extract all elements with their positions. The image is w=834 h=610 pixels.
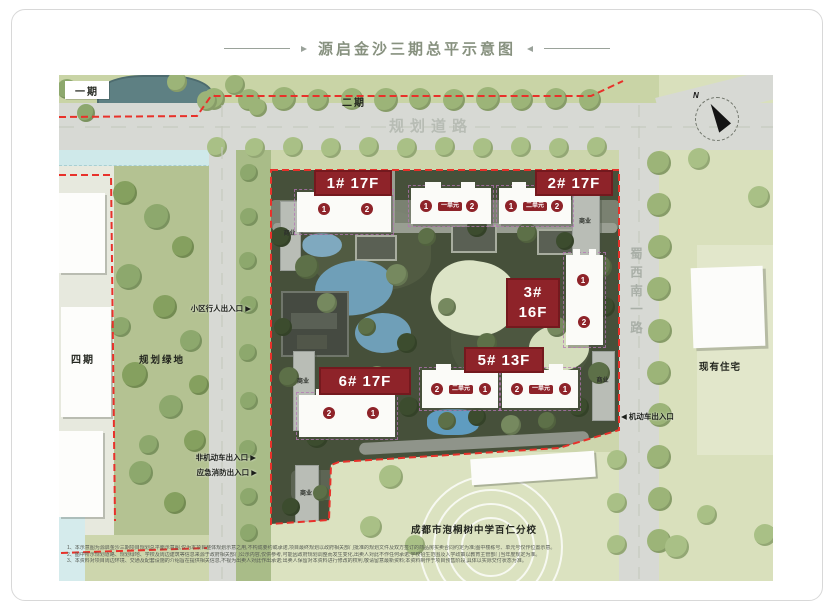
commercial-label: 商业	[295, 488, 317, 497]
unit-badge: 1	[367, 407, 379, 419]
planned-road-label: 规划道路	[389, 115, 473, 136]
non-motor-entrance-label: 非机动车出入口 ▶	[164, 452, 256, 463]
tree-icon	[129, 461, 153, 485]
tree-icon	[386, 264, 408, 286]
unit-badge: 1	[479, 383, 491, 395]
arrow-right-icon: ▶	[250, 453, 256, 462]
tree-icon	[295, 255, 319, 279]
unit-badge: 1	[505, 200, 517, 212]
tree-icon	[647, 151, 671, 175]
phase2-label: 二期	[342, 94, 366, 109]
tree-icon	[476, 87, 500, 111]
tree-icon	[240, 164, 258, 182]
road-west-vertical	[209, 103, 236, 581]
tree-icon	[688, 148, 710, 170]
pond-small	[302, 233, 342, 257]
phase1-label: 一期	[65, 81, 109, 99]
tree-icon	[272, 87, 296, 111]
tree-icon	[397, 138, 417, 158]
unit-badge: 2	[361, 203, 373, 215]
tree-icon	[321, 138, 341, 158]
emergency-fire-entrance-text: 应急消防出入口	[197, 468, 250, 477]
tree-icon	[249, 99, 267, 117]
tree-icon	[139, 435, 159, 455]
arrow-left-icon: ◀	[621, 412, 627, 421]
commercial-label: 商业	[572, 216, 598, 225]
tree-icon	[240, 208, 258, 226]
tree-icon	[648, 487, 672, 511]
courtyard-frame	[355, 235, 397, 261]
building-6-label: 6# 17F	[319, 367, 411, 395]
tree-icon	[184, 430, 206, 452]
tree-icon	[189, 375, 209, 395]
north-compass: N	[691, 93, 741, 143]
tree-icon	[754, 524, 773, 546]
tree-icon	[239, 252, 257, 270]
building-6	[299, 395, 395, 437]
building-2-label: 2# 17F	[535, 170, 613, 196]
tree-icon	[317, 293, 337, 313]
unit-badge: 2	[551, 200, 563, 212]
tree-icon	[359, 137, 379, 157]
tree-icon	[282, 498, 300, 516]
tree-icon	[164, 492, 186, 514]
tree-icon	[374, 88, 398, 112]
commercial-label: 商业	[293, 376, 313, 385]
unit-badge: 2	[511, 383, 523, 395]
title-decoration-line-left	[224, 48, 290, 49]
unit-name-tag: 一单元	[529, 385, 553, 394]
arrow-right-icon: ▶	[251, 468, 257, 477]
tree-icon	[587, 137, 607, 157]
tree-icon	[579, 89, 601, 111]
north-label: N	[693, 91, 699, 100]
tree-icon	[511, 89, 533, 111]
tree-icon	[647, 277, 671, 301]
tree-icon	[435, 137, 455, 157]
unit-badge: 1	[577, 274, 589, 286]
title-bar: 源启金沙三期总平示意图	[0, 38, 834, 59]
tree-icon	[648, 235, 672, 259]
tree-icon	[468, 408, 486, 426]
title-decoration-line-right	[544, 48, 610, 49]
tree-icon	[307, 89, 329, 111]
commercial-label: 商业	[592, 375, 613, 384]
tree-icon	[274, 318, 292, 336]
tree-icon	[607, 450, 627, 470]
emergency-fire-entrance-label: 应急消防出入口 ▶	[161, 467, 257, 478]
tree-icon	[172, 236, 194, 258]
unit-badge: 1	[318, 203, 330, 215]
tree-icon	[748, 186, 770, 208]
tree-icon	[240, 488, 258, 506]
tree-icon	[443, 89, 465, 111]
clubhouse-wing	[297, 335, 327, 349]
tree-icon	[360, 516, 382, 538]
tree-icon	[144, 204, 170, 230]
tree-icon	[399, 397, 419, 417]
screenshot-page: 源启金沙三期总平示意图	[0, 0, 834, 610]
tree-icon	[538, 412, 556, 430]
building-1-label: 1# 17F	[314, 170, 392, 196]
unit-badge: 2	[431, 383, 443, 395]
tree-icon	[545, 88, 567, 110]
tree-icon	[225, 75, 245, 95]
tree-icon	[240, 392, 258, 410]
unit-badge: 1	[559, 383, 571, 395]
planned-green-label: 规划绿地	[139, 352, 185, 366]
tree-icon	[197, 91, 217, 111]
unit-badge: 2	[466, 200, 478, 212]
tree-icon	[648, 319, 672, 343]
unit-badge: 1	[420, 200, 432, 212]
tree-icon	[283, 137, 303, 157]
west-road-label: 蜀西南一路	[626, 247, 645, 340]
unit-badge: 2	[323, 407, 335, 419]
tree-icon	[418, 228, 436, 246]
tree-icon	[647, 193, 671, 217]
unit-name-tag: 一单元	[438, 202, 462, 211]
tree-icon	[517, 223, 537, 243]
motor-entrance-text: 机动车出入口	[629, 412, 674, 421]
tree-icon	[647, 361, 671, 385]
tree-icon	[409, 88, 431, 110]
tree-icon	[240, 524, 258, 542]
tree-icon	[556, 232, 574, 250]
phase4-building	[59, 431, 103, 517]
building-5-label: 5# 13F	[464, 347, 544, 373]
pedestrian-entrance-text: 小区行人出入口	[191, 304, 244, 313]
unit-name-tag: 二单元	[449, 385, 473, 394]
tree-icon	[159, 395, 183, 419]
tree-icon	[549, 138, 569, 158]
unit-name-tag: 二单元	[523, 202, 547, 211]
tree-icon	[697, 505, 717, 525]
tree-icon	[207, 137, 227, 157]
tree-icon	[111, 317, 131, 337]
title-arrow-left-icon	[527, 46, 533, 52]
unit-badge: 2	[578, 316, 590, 328]
tree-icon	[473, 138, 493, 158]
existing-residence-label: 现有住宅	[699, 359, 741, 373]
tree-icon	[116, 264, 142, 290]
building-3-label-number: 3#	[524, 283, 543, 303]
tree-icon	[607, 493, 627, 513]
phase1-text: 一期	[75, 83, 99, 98]
disclaimer-line: 3、本资料对项目周边环境、交通及配套设施的介绍旨在提供相关信息,不视为出卖人对此…	[67, 558, 767, 565]
tree-icon	[379, 465, 403, 489]
tree-icon	[647, 445, 671, 469]
building-1	[297, 192, 391, 232]
tree-icon	[77, 104, 95, 122]
pedestrian-entrance-label: 小区行人出入口 ▶	[159, 303, 251, 314]
tree-icon	[397, 333, 417, 353]
arrow-right-icon: ▶	[245, 304, 251, 313]
phase4-building	[59, 193, 105, 273]
building-3-label: 3# 16F	[506, 278, 560, 328]
phase4-label: 四期	[71, 351, 95, 366]
page-title: 源启金沙三期总平示意图	[318, 38, 516, 59]
clubhouse-roof-ridge	[291, 313, 337, 329]
site-map: 商业 商业 商业 商业 商业 1# 17F 2# 17F 3# 16F 5# 1…	[59, 75, 773, 581]
non-motor-entrance-text: 非机动车出入口	[196, 453, 249, 462]
disclaimer-fine-print: 1、本示意图为源启金沙三期项目规划总平面示意图,仅为本项目整体规划示意之用,不构…	[67, 545, 767, 565]
tree-icon	[245, 138, 265, 158]
tree-icon	[180, 330, 202, 352]
school-label: 成都市泡桐树中学百仁分校	[411, 522, 537, 536]
existing-residence-building	[691, 266, 766, 348]
tree-icon	[511, 137, 531, 157]
building-3	[566, 255, 603, 345]
title-arrow-right-icon	[301, 46, 307, 52]
tree-icon	[438, 298, 456, 316]
tree-icon	[358, 318, 376, 336]
building-3-label-floors: 16F	[519, 303, 548, 323]
tree-icon	[438, 412, 456, 430]
tree-icon	[113, 181, 137, 205]
tree-icon	[239, 344, 257, 362]
tree-icon	[501, 415, 521, 435]
motor-entrance-label: ◀ 机动车出入口	[621, 411, 711, 422]
